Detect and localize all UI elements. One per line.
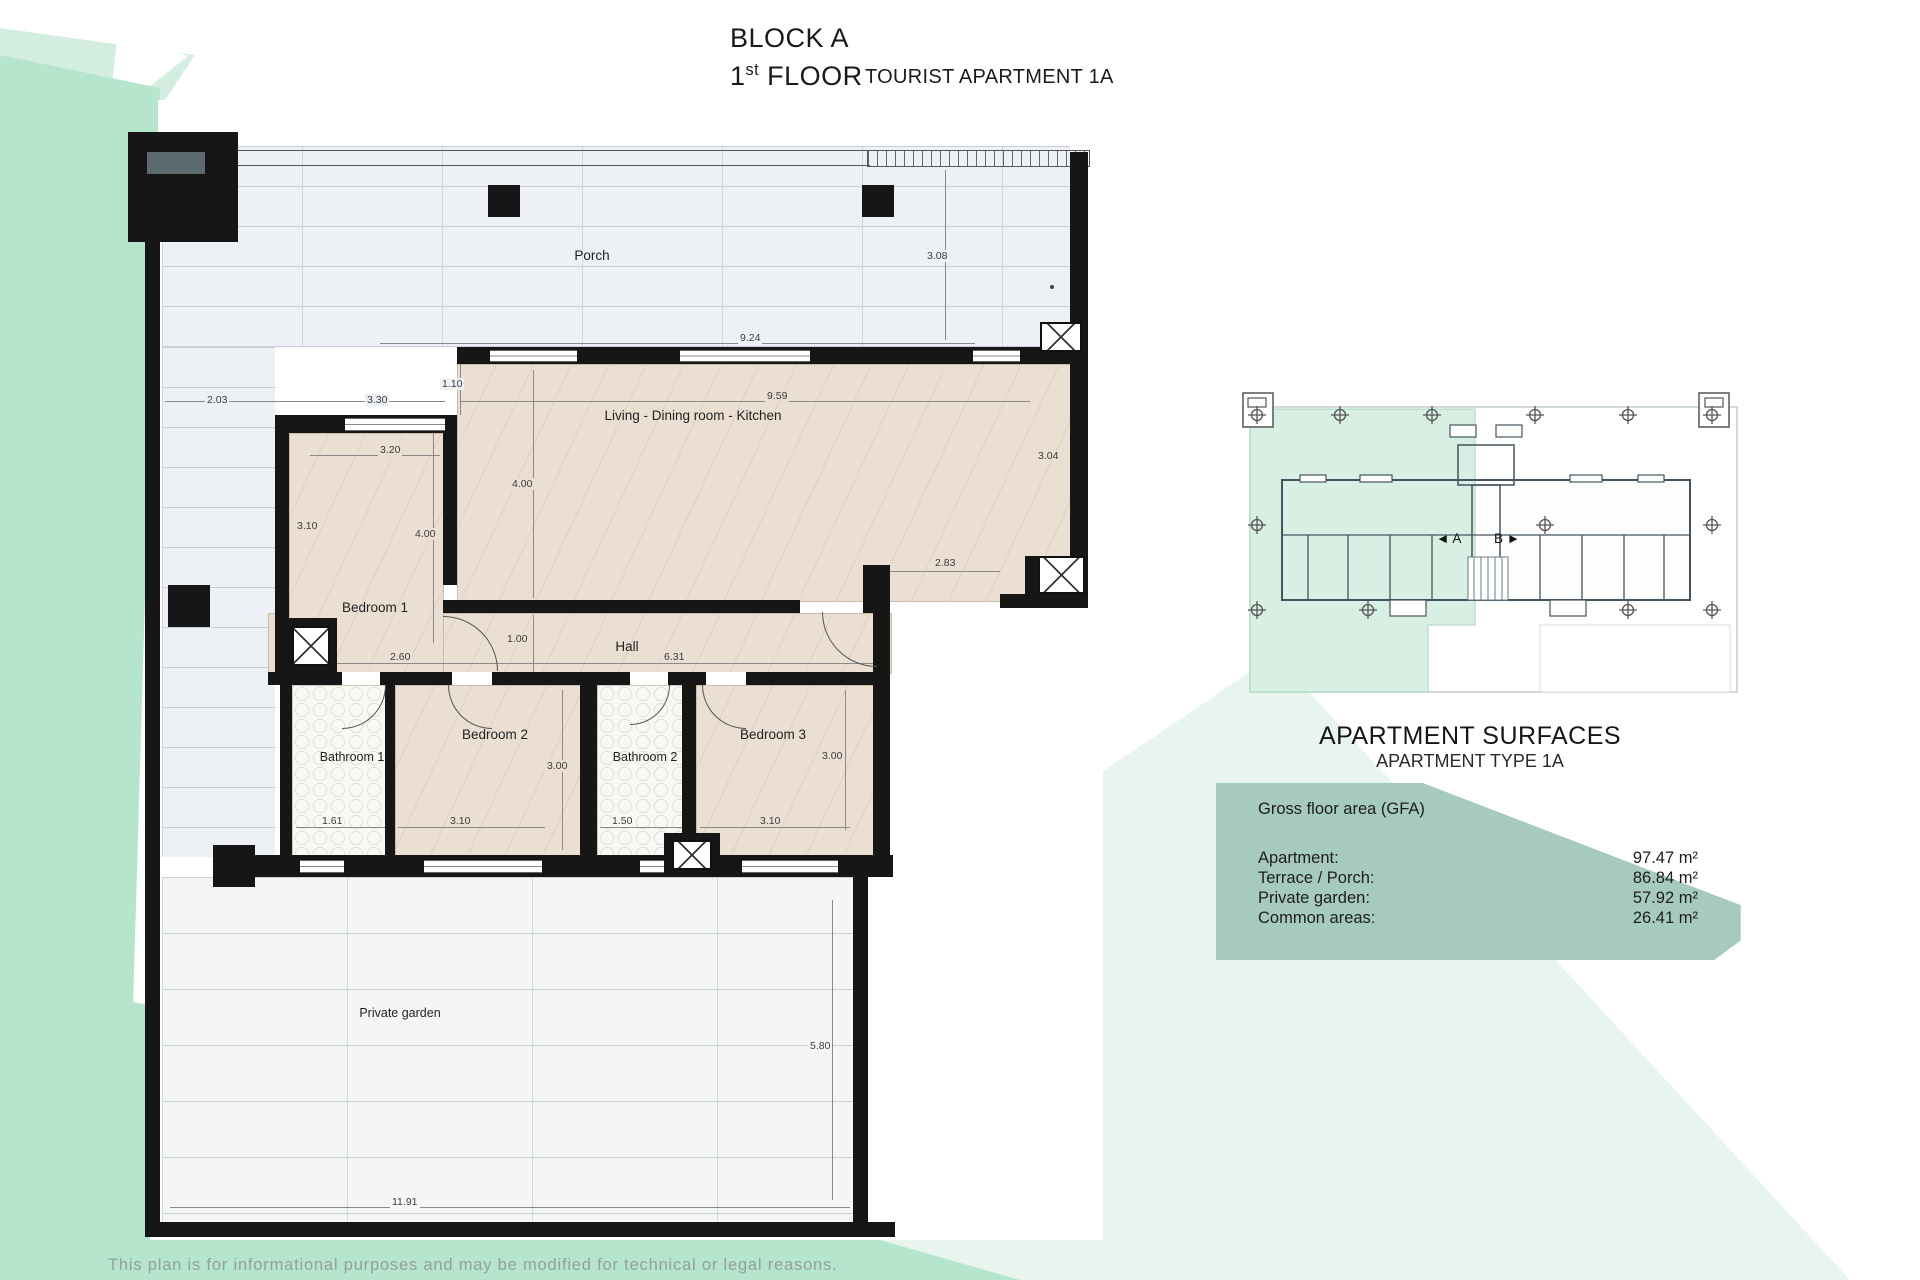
column — [168, 585, 210, 627]
room-label-garden: Private garden — [359, 1006, 440, 1020]
shaft-xbox — [292, 626, 330, 666]
door-gap — [452, 672, 492, 685]
page-title: BLOCK A 1st FLOOR — [730, 22, 863, 92]
surface-row-value: 57.92 m² — [1633, 889, 1698, 908]
dimension-label: 5.80 — [808, 1040, 832, 1052]
wall — [145, 1222, 895, 1237]
apartment-title: TOURIST APARTMENT 1A — [865, 66, 1114, 89]
dim-line — [330, 663, 878, 664]
porch-railing — [238, 150, 870, 166]
overview-apartment-a-highlight — [1250, 409, 1475, 692]
dimension-label: 11.91 — [390, 1196, 420, 1208]
wall — [385, 685, 395, 855]
dimension-label: 3.10 — [297, 520, 317, 532]
room-label-living: Living - Dining room - Kitchen — [604, 408, 781, 423]
floor-plan-page: BLOCK A 1st FLOOR TOURIST APARTMENT 1A — [0, 0, 1920, 1280]
living-slider-door — [680, 350, 810, 362]
bedroom2-window — [424, 860, 542, 873]
porch-floor — [162, 146, 1070, 347]
overview-plan: ◄ A B ► — [1240, 385, 1790, 705]
dimension-label: 3.20 — [378, 444, 402, 456]
surface-row-label: Common areas: — [1258, 909, 1375, 928]
column — [213, 845, 255, 887]
wall — [853, 877, 868, 1229]
dim-line — [845, 690, 846, 830]
room-label-bedroom1: Bedroom 1 — [342, 600, 408, 615]
door-gap — [706, 672, 746, 685]
dimension-label: 3.00 — [545, 760, 569, 772]
dimension-label: 2.60 — [388, 651, 412, 663]
room-label-bedroom2: Bedroom 2 — [462, 727, 528, 742]
dim-line — [533, 615, 534, 672]
title-floor: 1st FLOOR — [730, 54, 863, 92]
living-window-right — [973, 350, 1020, 362]
porch-divider-hatch — [867, 150, 1090, 167]
wall — [443, 415, 457, 585]
dim-line — [460, 401, 1030, 402]
room-label-bathroom2: Bathroom 2 — [613, 750, 678, 764]
wall — [580, 685, 597, 855]
dimension-label: 1.50 — [612, 815, 632, 827]
kitchen-xbox — [1038, 556, 1085, 594]
wall — [682, 685, 696, 855]
dimension-label: 3.10 — [758, 815, 782, 827]
column — [862, 185, 894, 217]
dim-line — [398, 827, 545, 828]
door-gap — [342, 672, 380, 685]
overview-label-a: ◄ A — [1436, 531, 1461, 546]
overview-stair — [1468, 557, 1508, 600]
dimension-label: 3.04 — [1038, 450, 1058, 462]
surface-row-label: Private garden: — [1258, 889, 1370, 908]
bedroom1-window — [345, 418, 445, 431]
disclaimer-text: This plan is for informational purposes … — [108, 1256, 837, 1275]
dimension-label: 4.00 — [510, 478, 534, 490]
gfa-label: Gross floor area (GFA) — [1258, 800, 1425, 819]
wall — [1070, 152, 1088, 558]
dim-line — [890, 571, 1000, 572]
surface-row: Terrace / Porch: 86.84 m² — [1258, 869, 1698, 888]
dim-line — [296, 827, 385, 828]
dimension-label: 9.59 — [765, 390, 789, 402]
bathroom1-window — [300, 860, 344, 873]
living-window-left — [490, 350, 577, 362]
dim-line — [700, 827, 850, 828]
dimension-label: 1.10 — [440, 378, 464, 390]
dim-line — [380, 343, 975, 344]
surface-row: Common areas: 26.41 m² — [1258, 909, 1698, 928]
overview-label-b: B ► — [1494, 531, 1520, 546]
dimension-label: 3.10 — [448, 815, 472, 827]
dimension-label: 1.61 — [322, 815, 342, 827]
surface-row-label: Terrace / Porch: — [1258, 869, 1374, 888]
surface-row-label: Apartment: — [1258, 849, 1339, 868]
wall — [1025, 556, 1039, 608]
surface-row: Apartment: 97.47 m² — [1258, 849, 1698, 868]
overview-garden-b — [1540, 625, 1730, 692]
dimension-label: 2.83 — [935, 557, 955, 569]
room-label-bedroom3: Bedroom 3 — [740, 727, 806, 742]
wall — [863, 565, 890, 613]
wall — [145, 240, 160, 1237]
title-block-name: BLOCK A — [730, 22, 863, 54]
surfaces-title: APARTMENT SURFACES — [1250, 722, 1690, 751]
dim-line — [600, 827, 682, 828]
dimension-label: 6.31 — [662, 651, 686, 663]
dim-line — [170, 1207, 850, 1208]
bedroom3-window — [742, 860, 838, 873]
garden-floor — [162, 877, 853, 1224]
dimension-label: 3.08 — [925, 250, 949, 262]
wall — [280, 685, 292, 855]
room-label-bathroom1: Bathroom 1 — [320, 750, 385, 764]
surface-row-value: 26.41 m² — [1633, 909, 1698, 928]
wall — [443, 600, 800, 613]
utility-sink-dot — [1050, 285, 1054, 289]
washer-xbox — [672, 840, 712, 870]
dimension-label: 3.30 — [365, 394, 389, 406]
porch-xbox — [1040, 322, 1082, 352]
room-label-porch: Porch — [574, 248, 609, 263]
dimension-label: 4.00 — [413, 528, 437, 540]
room-label-hall: Hall — [615, 639, 638, 654]
dimension-label: 2.03 — [205, 394, 229, 406]
surface-row: Private garden: 57.92 m² — [1258, 889, 1698, 908]
planter-block — [128, 132, 238, 242]
door-gap — [630, 672, 668, 685]
dimension-label: 9.24 — [738, 332, 762, 344]
dimension-label: 3.00 — [820, 750, 844, 762]
surfaces-subtitle: APARTMENT TYPE 1A — [1250, 751, 1690, 772]
dim-line — [310, 455, 440, 456]
column — [488, 185, 520, 217]
surface-row-value: 97.47 m² — [1633, 849, 1698, 868]
planter-inner — [147, 152, 205, 174]
dimension-label: 1.00 — [505, 633, 529, 645]
surface-row-value: 86.84 m² — [1633, 869, 1698, 888]
